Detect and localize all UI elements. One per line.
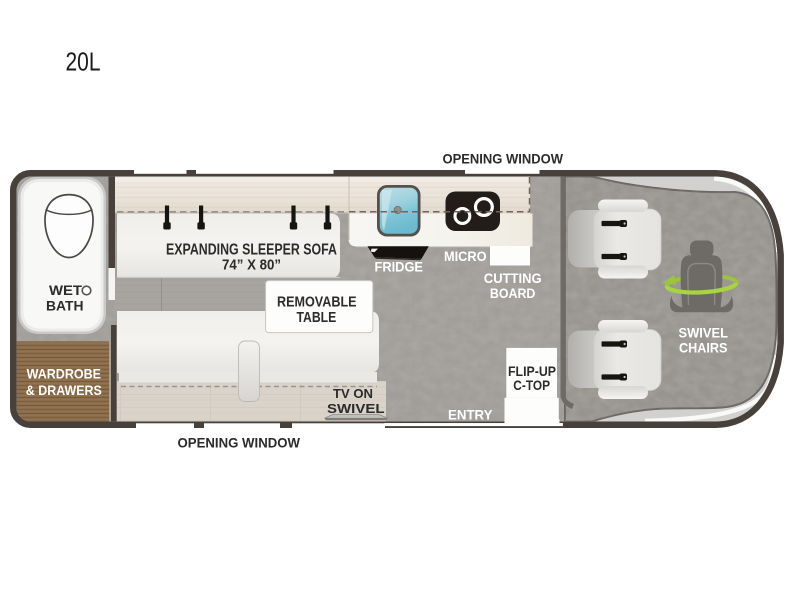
svg-text:MICRO: MICRO — [444, 248, 487, 264]
svg-text:OPENING WINDOW: OPENING WINDOW — [443, 152, 564, 167]
svg-text:BOARD: BOARD — [490, 285, 536, 301]
svg-text:OPENING WINDOW: OPENING WINDOW — [178, 436, 301, 451]
svg-text:SWIVEL: SWIVEL — [679, 325, 729, 341]
svg-text:SWIVEL: SWIVEL — [327, 402, 385, 416]
svg-text:FRIDGE: FRIDGE — [375, 258, 424, 274]
svg-text:WET: WET — [49, 282, 82, 298]
svg-text:74” X 80”: 74” X 80” — [222, 258, 281, 274]
svg-text:CHAIRS: CHAIRS — [679, 340, 728, 356]
svg-text:& DRAWERS: & DRAWERS — [26, 382, 102, 398]
svg-text:WARDROBE: WARDROBE — [27, 366, 101, 382]
svg-text:CUTTING: CUTTING — [484, 270, 542, 286]
svg-text:TABLE: TABLE — [297, 310, 337, 326]
svg-text:TV ON: TV ON — [333, 387, 373, 401]
svg-text:BATH: BATH — [46, 297, 84, 313]
svg-text:ENTRY: ENTRY — [448, 407, 493, 423]
svg-text:EXPANDING SLEEPER SOFA: EXPANDING SLEEPER SOFA — [166, 242, 337, 259]
svg-text:REMOVABLE: REMOVABLE — [277, 295, 357, 311]
svg-text:20L: 20L — [66, 47, 101, 77]
svg-text:C-TOP: C-TOP — [513, 377, 550, 393]
